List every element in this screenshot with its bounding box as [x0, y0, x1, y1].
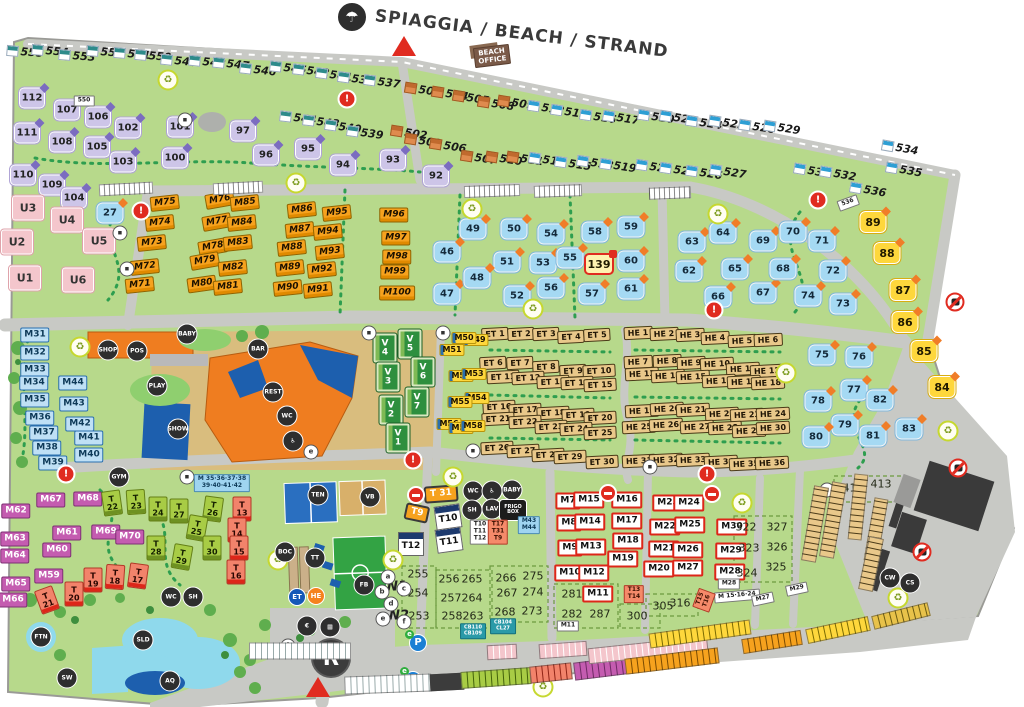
house-icon — [485, 151, 499, 164]
pitch-108: 108 — [49, 132, 75, 153]
et-zone-icon: ET — [288, 588, 306, 606]
theater-icon: SHOW — [168, 419, 189, 440]
plot-282: 282 — [562, 609, 583, 620]
mobile-home-m13: M13 — [575, 539, 606, 556]
shower-icon: SH — [462, 500, 483, 521]
house-icon — [599, 158, 613, 171]
mobile-home-m59: M59 — [34, 569, 63, 584]
pitch-v6: V 6 — [412, 358, 435, 387]
mobile-home-m90: M90 — [273, 279, 304, 297]
no-entry-icon — [703, 485, 721, 503]
shower-icon: SH — [183, 587, 204, 608]
unit-u2: U2 — [1, 230, 33, 255]
house-icon — [31, 44, 44, 56]
pitch-he26: HE 26 — [649, 418, 684, 433]
house-icon — [506, 151, 520, 164]
plot-324: 324 — [737, 568, 758, 579]
house-icon — [429, 138, 443, 151]
pitch-76: 76 — [846, 347, 873, 368]
mobile-home-m62: M62 — [1, 504, 30, 519]
pitch-96: 96 — [253, 145, 279, 166]
house-number: 539 — [360, 127, 384, 141]
soccer-icon: FB — [354, 575, 375, 596]
mobile-home-m98: M98 — [382, 250, 411, 265]
pitch-61: 61 — [618, 279, 645, 300]
wc-icon: WC — [161, 587, 182, 608]
aqua-play-icon: AQ — [160, 671, 181, 692]
tent-t9: T9 — [403, 502, 430, 524]
pitch-80: 80 — [803, 427, 830, 448]
parking-strip — [529, 662, 573, 683]
pitch-51: 51 — [494, 252, 521, 273]
house-539: 539 — [346, 125, 384, 141]
pitch-60: 60 — [618, 251, 645, 272]
house-icon — [819, 165, 833, 178]
pitch-et3: ET 3 — [532, 327, 560, 341]
table-tennis-icon: TT — [305, 548, 326, 569]
unit-u1: U1 — [9, 266, 41, 291]
tent-t20: T 20 — [65, 582, 84, 607]
house-icon — [279, 110, 292, 122]
sign-t13: T13 T14 — [624, 585, 644, 603]
house-icon — [576, 155, 590, 168]
house-icon — [659, 162, 673, 175]
mobile-home-m63: M63 — [0, 532, 29, 547]
recycling-icon: ♻ — [443, 467, 464, 488]
mobile-home-m66: M66 — [0, 593, 28, 608]
mobile-home-m41: M41 — [74, 431, 103, 446]
house-icon — [793, 162, 807, 175]
mobile-home-m93: M93 — [315, 243, 346, 261]
mobile-home-m68: M68 — [73, 492, 102, 507]
pitch-81: 81 — [860, 426, 887, 447]
pitch-et5: ET 5 — [583, 328, 611, 342]
recycling-icon: ♻ — [286, 173, 307, 194]
sign-beach: BEACH OFFICE — [473, 44, 511, 68]
pitch-he30: HE 30 — [756, 421, 791, 436]
house-537: 537 — [363, 74, 401, 90]
pitch-50: 50 — [501, 219, 528, 240]
tennis-icon: TEN — [308, 485, 329, 506]
tent-t19: T 19 — [84, 568, 103, 593]
house-icon — [134, 49, 147, 61]
car-wash-icon: CW — [880, 568, 901, 589]
plot-256: 256 — [439, 574, 460, 585]
pitch-54: 54 — [538, 224, 565, 245]
tent-t23: T 23 — [126, 489, 147, 515]
mobile-home-m40: M40 — [74, 448, 103, 463]
alert-marker-4: ! — [338, 90, 357, 109]
house-icon — [212, 57, 225, 69]
house-number: 536 — [863, 184, 888, 199]
utility-icon: ▪ — [643, 460, 658, 475]
pitch-et2: ET 2 — [507, 327, 535, 341]
camper-service-icon: CS — [900, 573, 921, 594]
pitch-111: 111 — [14, 123, 40, 144]
pitch-he24: HE 24 — [756, 407, 791, 422]
mobile-home-m43: M43 — [59, 397, 88, 412]
no-dogs-icon — [913, 543, 932, 562]
area-letter-e: e — [376, 612, 391, 627]
pitch-47: 47 — [434, 284, 461, 305]
house-532: 532 — [819, 165, 857, 182]
no-access-icon — [946, 293, 965, 312]
alert-marker-2: ! — [57, 465, 76, 484]
sign-m29: M29 — [785, 581, 809, 596]
mobile-home-m17: M17 — [611, 513, 642, 530]
plot-263: 263 — [463, 611, 484, 622]
pitch-he36: HE 36 — [755, 456, 790, 471]
pitch-et7: ET 7 — [506, 356, 534, 370]
house-icon — [346, 125, 359, 138]
pitch-he4: HE 4 — [700, 331, 729, 345]
plot-268: 268 — [495, 607, 516, 618]
utility-icon: ▪ — [362, 326, 377, 341]
plot-257: 257 — [441, 593, 462, 604]
restaurant-icon: REST — [263, 382, 284, 403]
plot-265: 265 — [462, 574, 483, 585]
house-icon — [709, 164, 723, 177]
house-icon — [528, 152, 542, 165]
pitch-84: 84 — [929, 376, 956, 398]
mobile-home-m55: M55 — [447, 396, 472, 408]
tent-t18: T 18 — [105, 564, 126, 590]
mobile-home-m26: M26 — [672, 542, 703, 559]
parking-strip — [649, 186, 691, 199]
mobile-home-m25: M25 — [674, 517, 705, 534]
house-icon — [292, 63, 305, 75]
plot-281: 281 — [562, 589, 583, 600]
parking-strip — [487, 644, 518, 661]
mobile-home-m42: M42 — [65, 417, 94, 432]
house-icon — [849, 181, 863, 194]
pitch-106: 106 — [85, 107, 111, 128]
pitch-63: 63 — [679, 232, 706, 253]
pitch-79: 79 — [832, 415, 859, 436]
alert-marker-1: ! — [404, 451, 423, 470]
plot-287: 287 — [590, 609, 611, 620]
recycling-icon: ♻ — [462, 199, 483, 220]
house-icon — [635, 159, 649, 172]
mobile-home-m31: M31 — [20, 328, 49, 343]
ev-car-icon: e — [304, 445, 319, 460]
plot-327: 327 — [767, 522, 788, 533]
mobile-home-m14: M14 — [574, 514, 605, 531]
parking-icon: P — [409, 634, 427, 652]
recycling-icon: ♻ — [938, 421, 959, 442]
recycling-icon: ♻ — [70, 337, 91, 358]
parking-strip — [344, 673, 432, 694]
parking-strip — [539, 641, 588, 659]
house-icon — [554, 156, 568, 169]
mobile-home-m85: M85 — [230, 194, 261, 212]
utility-icon: ▪ — [113, 226, 128, 241]
pitch-102: 102 — [115, 118, 141, 139]
sign-550: 550 — [74, 96, 95, 107]
pitch-v7: V 7 — [406, 388, 429, 417]
house-icon — [550, 104, 564, 117]
baby-room-icon: BABY — [502, 480, 523, 501]
utility-icon: ▪ — [178, 113, 193, 128]
pitch-95: 95 — [295, 139, 321, 160]
house-icon — [431, 86, 445, 99]
swimming-icon: SW — [57, 668, 78, 689]
mobile-home-m94: M94 — [313, 223, 344, 241]
area-letter-d: d — [384, 597, 399, 612]
sign-m-35-36-37-38: M 35·36·37·38 39·40·41·42 — [194, 474, 250, 492]
house-icon — [527, 100, 541, 113]
house-icon — [239, 62, 252, 74]
parking-strip — [249, 643, 351, 660]
sign-m11: M11 — [557, 621, 579, 632]
pitch-et15: ET 15 — [583, 378, 616, 393]
pitch-v1: V 1 — [387, 424, 410, 453]
pitch-67: 67 — [750, 283, 777, 304]
pitch-53: 53 — [530, 253, 557, 274]
house-icon — [160, 54, 173, 66]
tent-t30: T 30 — [203, 536, 222, 561]
mobile-home-m74: M74 — [145, 214, 176, 232]
pitch-72: 72 — [820, 261, 847, 282]
parking-strip — [858, 536, 884, 592]
house-icon — [269, 60, 282, 72]
plot-266: 266 — [496, 573, 517, 584]
mobile-home-m27: M27 — [672, 560, 703, 577]
tent-t12: T12 — [398, 532, 424, 556]
pitch-83: 83 — [896, 419, 923, 440]
pitch-et30: ET 30 — [585, 455, 618, 470]
bar-icon: BAR — [248, 339, 269, 360]
pitch-he5: HE 5 — [727, 334, 756, 348]
mobile-home-m32: M32 — [20, 346, 49, 361]
wc-icon: WC — [463, 481, 484, 502]
utility-icon: ▪ — [436, 326, 451, 341]
fountain-icon: FTN — [31, 627, 52, 648]
recycling-icon: ♻ — [383, 550, 404, 571]
parking-strip — [430, 673, 465, 692]
house-icon — [58, 49, 71, 61]
mobile-home-m37: M37 — [29, 426, 58, 441]
tent-t22: T 22 — [101, 489, 123, 516]
pitch-87: 87 — [890, 279, 917, 301]
gym-icon: GYM — [109, 467, 130, 488]
pitch-55: 55 — [557, 248, 584, 269]
mobile-home-m51: M51 — [439, 344, 464, 356]
pitch-57: 57 — [579, 284, 606, 305]
waterslide-icon: SLD — [133, 630, 154, 651]
mobile-home-m36: M36 — [25, 411, 54, 426]
area-letter-c: c — [397, 582, 412, 597]
plot-255: 255 — [408, 569, 429, 580]
house-icon — [390, 125, 404, 138]
sign-m28: M28 — [718, 579, 740, 590]
unit-u3: U3 — [12, 196, 44, 221]
house-icon — [685, 115, 699, 128]
mobile-home-m50: M50 — [451, 332, 476, 344]
pitch-85: 85 — [911, 340, 938, 362]
ticket-machine-icon: ▦ — [320, 617, 341, 638]
mobile-home-m18: M18 — [612, 533, 643, 550]
parking-strip — [464, 184, 520, 198]
accessible-icon: ♿ — [283, 431, 304, 452]
mobile-home-m24: M24 — [673, 495, 704, 512]
tent-t16: T 16 — [227, 560, 246, 585]
pitch-v3: V 3 — [377, 363, 400, 392]
alert-marker-5: ! — [809, 191, 828, 210]
plot-267: 267 — [497, 588, 518, 599]
house-icon — [602, 110, 616, 123]
sign-536: 536 — [836, 194, 859, 211]
euro-icon: € — [297, 616, 318, 637]
pitch-139: 139 — [584, 253, 614, 275]
pitch-v4: V 4 — [374, 334, 397, 363]
house-icon — [738, 119, 752, 132]
plot-258: 258 — [442, 611, 463, 622]
mobile-home-m92: M92 — [307, 261, 338, 279]
no-entry-icon — [407, 486, 425, 504]
pitch-97: 97 — [230, 121, 256, 142]
pitch-65: 65 — [722, 259, 749, 280]
pitch-64: 64 — [710, 223, 737, 244]
mobile-home-m64: M64 — [0, 549, 29, 564]
parking-strip — [99, 182, 154, 197]
plot-323: 323 — [739, 543, 760, 554]
tent-t28: T 28 — [147, 536, 166, 561]
mobile-home-m97: M97 — [381, 231, 410, 246]
sign-cb110: CB110 CB109 — [460, 623, 486, 639]
mobile-home-m12: M12 — [578, 565, 609, 582]
house-icon — [763, 120, 777, 133]
parking-strip — [534, 184, 582, 198]
unit-u6: U6 — [62, 268, 94, 293]
parking-strip — [213, 181, 264, 196]
entrance-marker — [306, 677, 330, 697]
plot-322: 322 — [736, 522, 757, 533]
mobile-home-m67: M67 — [36, 493, 65, 508]
pitch-105: 105 — [84, 137, 110, 158]
sign-m43: M43 M44 — [518, 516, 540, 534]
unit-u4: U4 — [51, 208, 83, 233]
pitch-v2: V 2 — [380, 396, 403, 425]
wc-icon: WC — [277, 406, 298, 427]
pitch-73: 73 — [830, 294, 857, 315]
pitch-93: 93 — [380, 150, 406, 171]
mobile-home-m65: M65 — [1, 577, 30, 592]
parking-strip — [460, 667, 531, 689]
utility-icon: ▪ — [180, 470, 195, 485]
pitch-48: 48 — [464, 268, 491, 289]
house-icon — [881, 139, 895, 152]
mobile-home-m61: M61 — [52, 526, 81, 541]
pitch-he2: HE 2 — [649, 327, 678, 341]
pitch-70: 70 — [780, 222, 807, 243]
plot-253: 253 — [409, 611, 430, 622]
pitch-82: 82 — [867, 390, 894, 411]
pitch-et25: ET 25 — [583, 426, 616, 441]
playground-icon: PLAY — [147, 376, 168, 397]
pitch-89: 89 — [860, 211, 887, 233]
beach-umbrella-icon: ☂ — [336, 1, 368, 33]
mobile-home-m19: M19 — [607, 551, 638, 568]
sign-t15: T15 T16 — [692, 587, 716, 612]
house-icon — [86, 45, 99, 57]
house-534: 534 — [881, 139, 919, 156]
house-number: 535 — [899, 164, 924, 179]
utility-icon: ▪ — [120, 262, 135, 277]
pitch-58: 58 — [582, 222, 609, 243]
alert-marker-7: ! — [698, 465, 717, 484]
parking-strip — [805, 616, 871, 644]
mobile-home-m100: M100 — [379, 286, 415, 301]
mobile-home-m20: M20 — [643, 561, 674, 578]
recycling-icon: ♻ — [732, 493, 753, 514]
pitch-59: 59 — [618, 217, 645, 238]
house-number: 532 — [833, 168, 858, 183]
pitch-69: 69 — [750, 231, 777, 252]
map-overlay: SPIAGGIA / BEACH / STRAND 55555455355255… — [0, 0, 1024, 707]
shop-icon: SHOP — [98, 340, 119, 361]
house-icon — [315, 67, 328, 80]
map-title: SPIAGGIA / BEACH / STRAND — [374, 6, 670, 62]
mobile-home-m87: M87 — [285, 221, 316, 239]
house-number: 527 — [723, 166, 747, 180]
pitch-88: 88 — [874, 242, 901, 264]
pitch-et4: ET 4 — [557, 330, 585, 344]
pitch-100: 100 — [162, 148, 188, 169]
recycling-icon: ♻ — [776, 363, 797, 384]
mobile-home-m35: M35 — [20, 393, 49, 408]
pitch-112: 112 — [19, 88, 45, 109]
house-icon — [113, 47, 126, 59]
house-icon — [363, 74, 376, 87]
pitch-103: 103 — [110, 152, 136, 173]
mobile-home-m99: M99 — [380, 265, 409, 280]
house-icon — [452, 90, 466, 103]
pitch-104: 104 — [61, 188, 87, 209]
no-entry-icon — [599, 484, 617, 502]
pitch-he1: HE 1 — [623, 326, 652, 340]
pitch-92: 92 — [423, 166, 449, 187]
mobile-home-m86: M86 — [287, 201, 318, 219]
house-icon — [497, 95, 511, 108]
mobile-home-m11: M11 — [582, 586, 613, 603]
plot-275: 275 — [523, 571, 544, 582]
house-icon — [188, 55, 201, 67]
mobile-home-m71: M71 — [125, 276, 156, 294]
tent-t24: T 24 — [149, 497, 168, 522]
house-535: 535 — [885, 161, 923, 178]
recycling-icon: ♻ — [523, 299, 544, 320]
tent-t27: T 27 — [170, 499, 189, 524]
mobile-home-m79: M79 — [189, 251, 221, 271]
pitch-56: 56 — [538, 278, 565, 299]
house-icon — [404, 82, 418, 95]
mobile-home-m73: M73 — [137, 234, 168, 252]
no-dogs-icon — [949, 459, 968, 478]
tent-t17: T 17 — [127, 562, 149, 589]
plot-300: 300 — [627, 611, 648, 622]
sign-cb104: CB104 CL27 — [490, 618, 516, 634]
area-letter-f: f — [397, 615, 412, 630]
plot-325: 325 — [766, 562, 787, 573]
mobile-home-m91: M91 — [303, 281, 334, 299]
house-icon — [885, 161, 899, 174]
mobile-home-m38: M38 — [32, 441, 61, 456]
multisport-icon: VB — [360, 487, 381, 508]
pitch-94: 94 — [330, 155, 356, 176]
mobile-home-m58: M58 — [460, 420, 485, 432]
mobile-home-m82: M82 — [218, 259, 249, 277]
